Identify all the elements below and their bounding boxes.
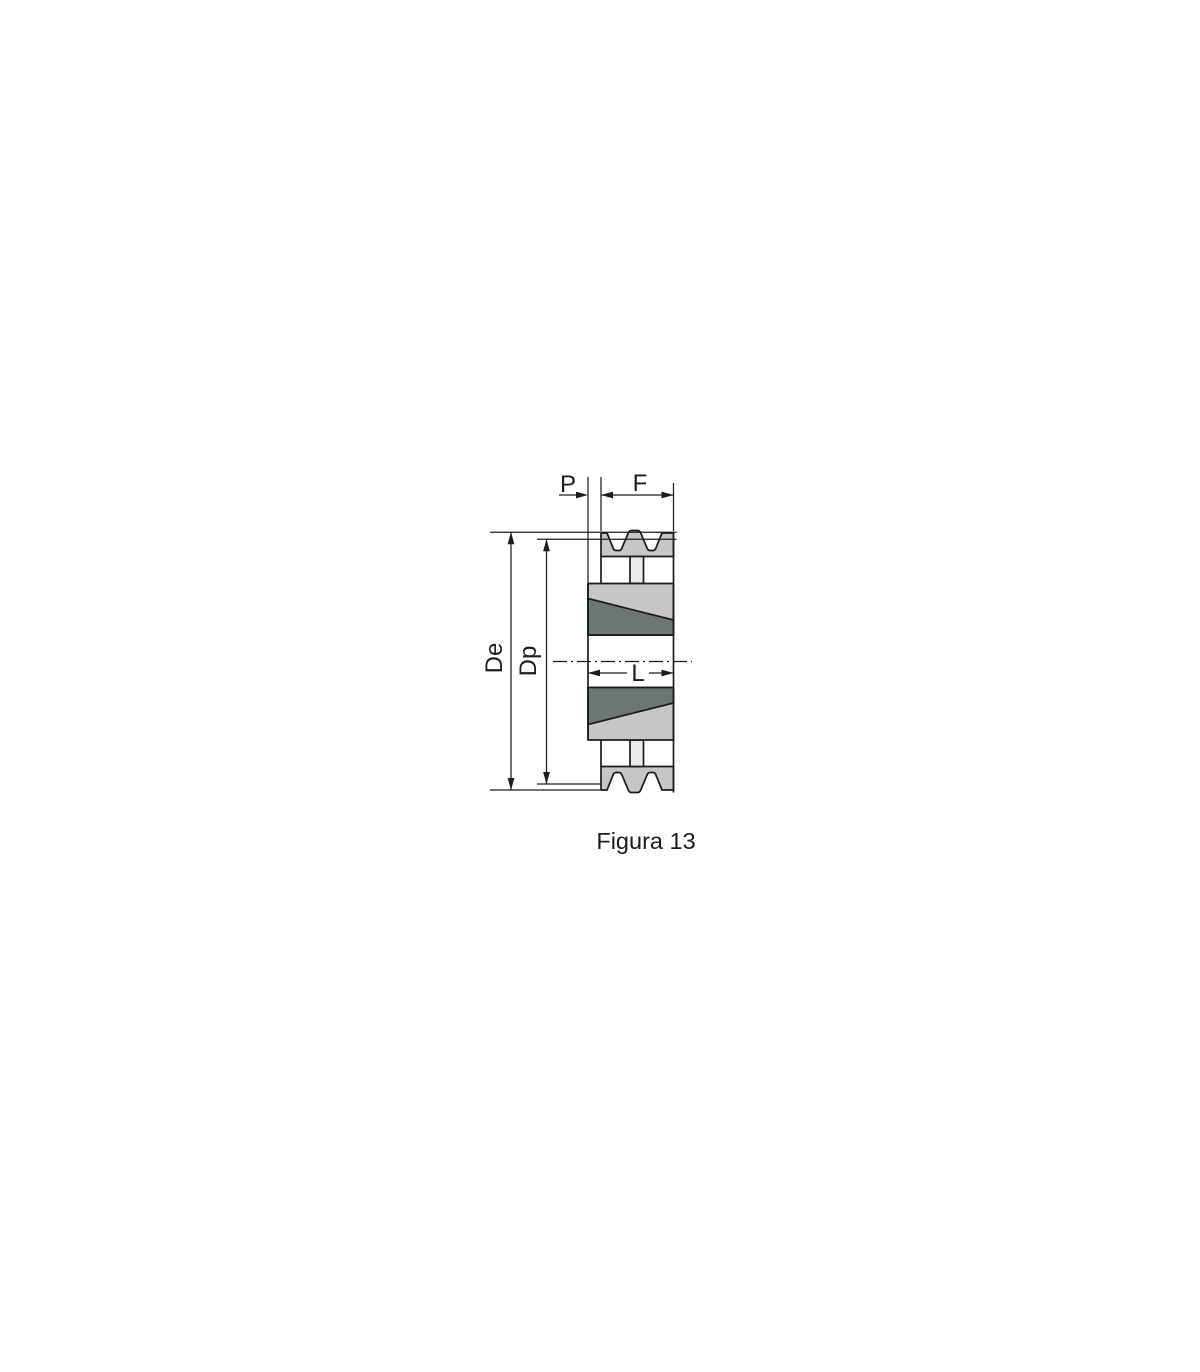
dim-f-label: F (633, 470, 648, 497)
web-plate-top (630, 557, 644, 584)
dimension-f: F (601, 470, 674, 498)
dim-de-arrow-top (508, 532, 515, 544)
dimension-de: De (481, 532, 514, 790)
dim-l-label: L (631, 660, 644, 687)
dimension-p: P (559, 471, 588, 498)
dim-f-arrow-right (662, 492, 674, 499)
dim-dp-arrow-top (543, 539, 550, 551)
dimension-l: L (588, 660, 674, 687)
top-rim-grooves (601, 531, 674, 557)
dim-p-arrow (576, 492, 588, 499)
dim-l-arrow-right (662, 670, 674, 677)
figure-page: P F De Dp L (0, 0, 1200, 1372)
bottom-rim-grooves (601, 767, 674, 793)
dimension-dp: Dp (515, 539, 550, 784)
figure-caption: Figura 13 (596, 828, 695, 854)
dim-l-arrow-left (588, 670, 600, 677)
web-plate-bottom (630, 740, 644, 767)
pulley-drawing (553, 531, 692, 793)
dim-f-arrow-left (601, 492, 613, 499)
dim-p-label: P (560, 471, 576, 498)
pulley-section-figure: P F De Dp L (0, 0, 1200, 1372)
dim-dp-arrow-bottom (543, 772, 550, 784)
dim-dp-label: Dp (515, 646, 542, 677)
dim-de-label: De (481, 643, 508, 674)
dim-de-arrow-bottom (508, 778, 515, 790)
